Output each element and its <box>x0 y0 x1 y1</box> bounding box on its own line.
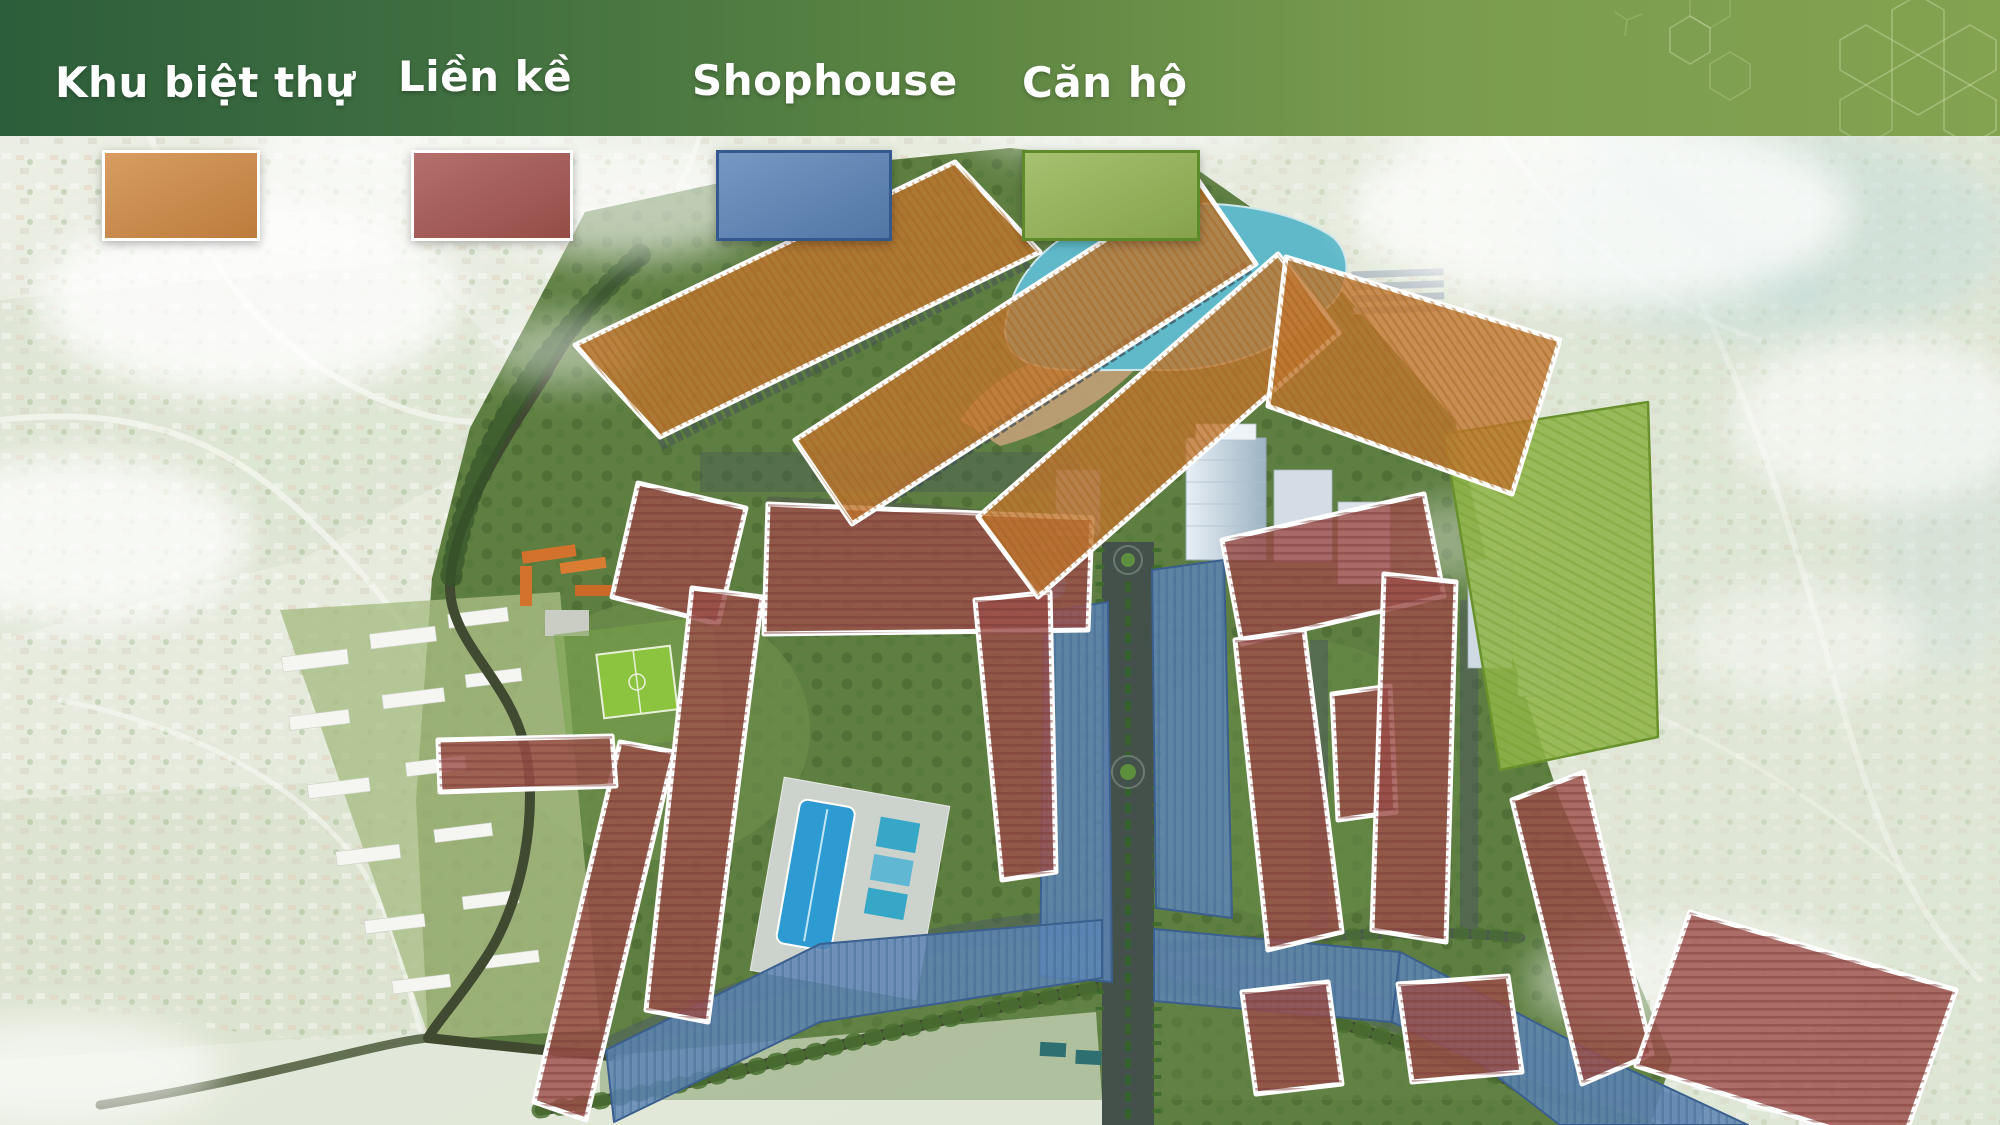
legend-label-shophouse: Shophouse <box>692 56 958 105</box>
masterplan-image: Khu biệt thự Liền kề Shophouse Căn hộ <box>0 0 2000 1125</box>
terraced-zone-10 <box>1372 574 1456 942</box>
terraced-zone-14 <box>1398 976 1522 1082</box>
terraced-zone-6 <box>438 736 616 792</box>
masterplan-map <box>0 0 2000 1125</box>
legend-label-apartment: Căn hộ <box>1022 58 1187 107</box>
legend-swatch-terraced <box>411 150 573 241</box>
hexagon-pattern <box>1440 0 2000 136</box>
legend-swatch-apartment <box>1022 150 1200 241</box>
legend-swatch-shophouse <box>716 150 892 241</box>
legend-swatch-villa <box>102 150 260 241</box>
legend-label-villa: Khu biệt thự <box>55 58 356 107</box>
shophouse-zone-2 <box>1152 560 1232 918</box>
legend-label-terraced: Liền kề <box>398 52 572 101</box>
terraced-zone-13 <box>1242 982 1342 1094</box>
